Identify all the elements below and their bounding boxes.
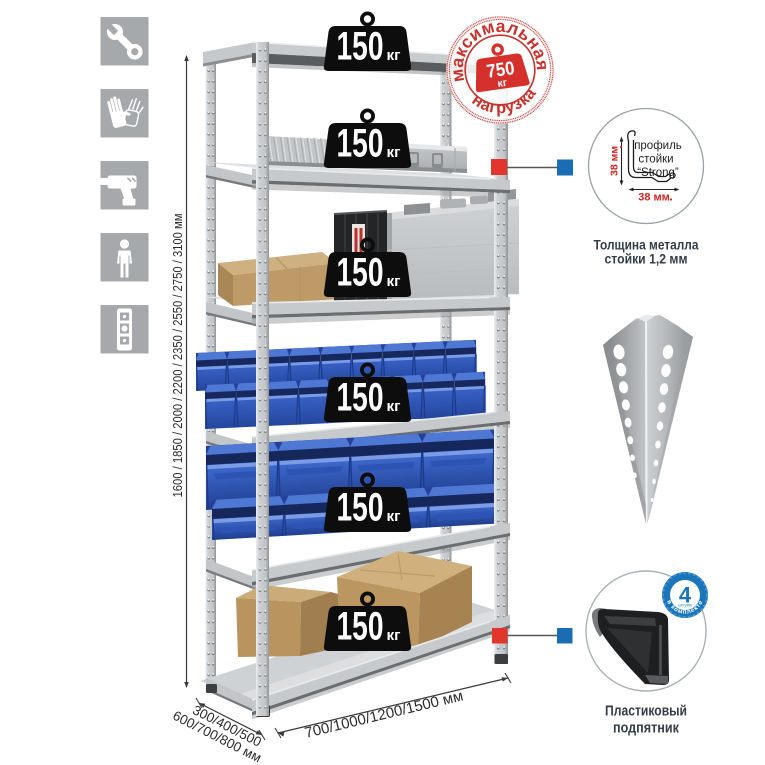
svg-text:профиль: профиль xyxy=(634,140,682,152)
svg-text:1600 / 1850 / 2000 / 2200 / 23: 1600 / 1850 / 2000 / 2200 / 2350 / 2550 … xyxy=(171,214,185,498)
svg-text:подпятник: подпятник xyxy=(613,721,680,737)
svg-text:Пластиковый: Пластиковый xyxy=(605,704,687,720)
svg-text:38 мм: 38 мм xyxy=(609,146,621,176)
svg-text:38 мм: 38 мм xyxy=(638,192,670,204)
svg-text:“Strong”: “Strong” xyxy=(637,167,679,179)
svg-text:штуки: штуки xyxy=(678,603,692,608)
svg-text:стойки 1,2 мм: стойки 1,2 мм xyxy=(605,251,688,267)
svg-text:стойки: стойки xyxy=(638,154,673,166)
